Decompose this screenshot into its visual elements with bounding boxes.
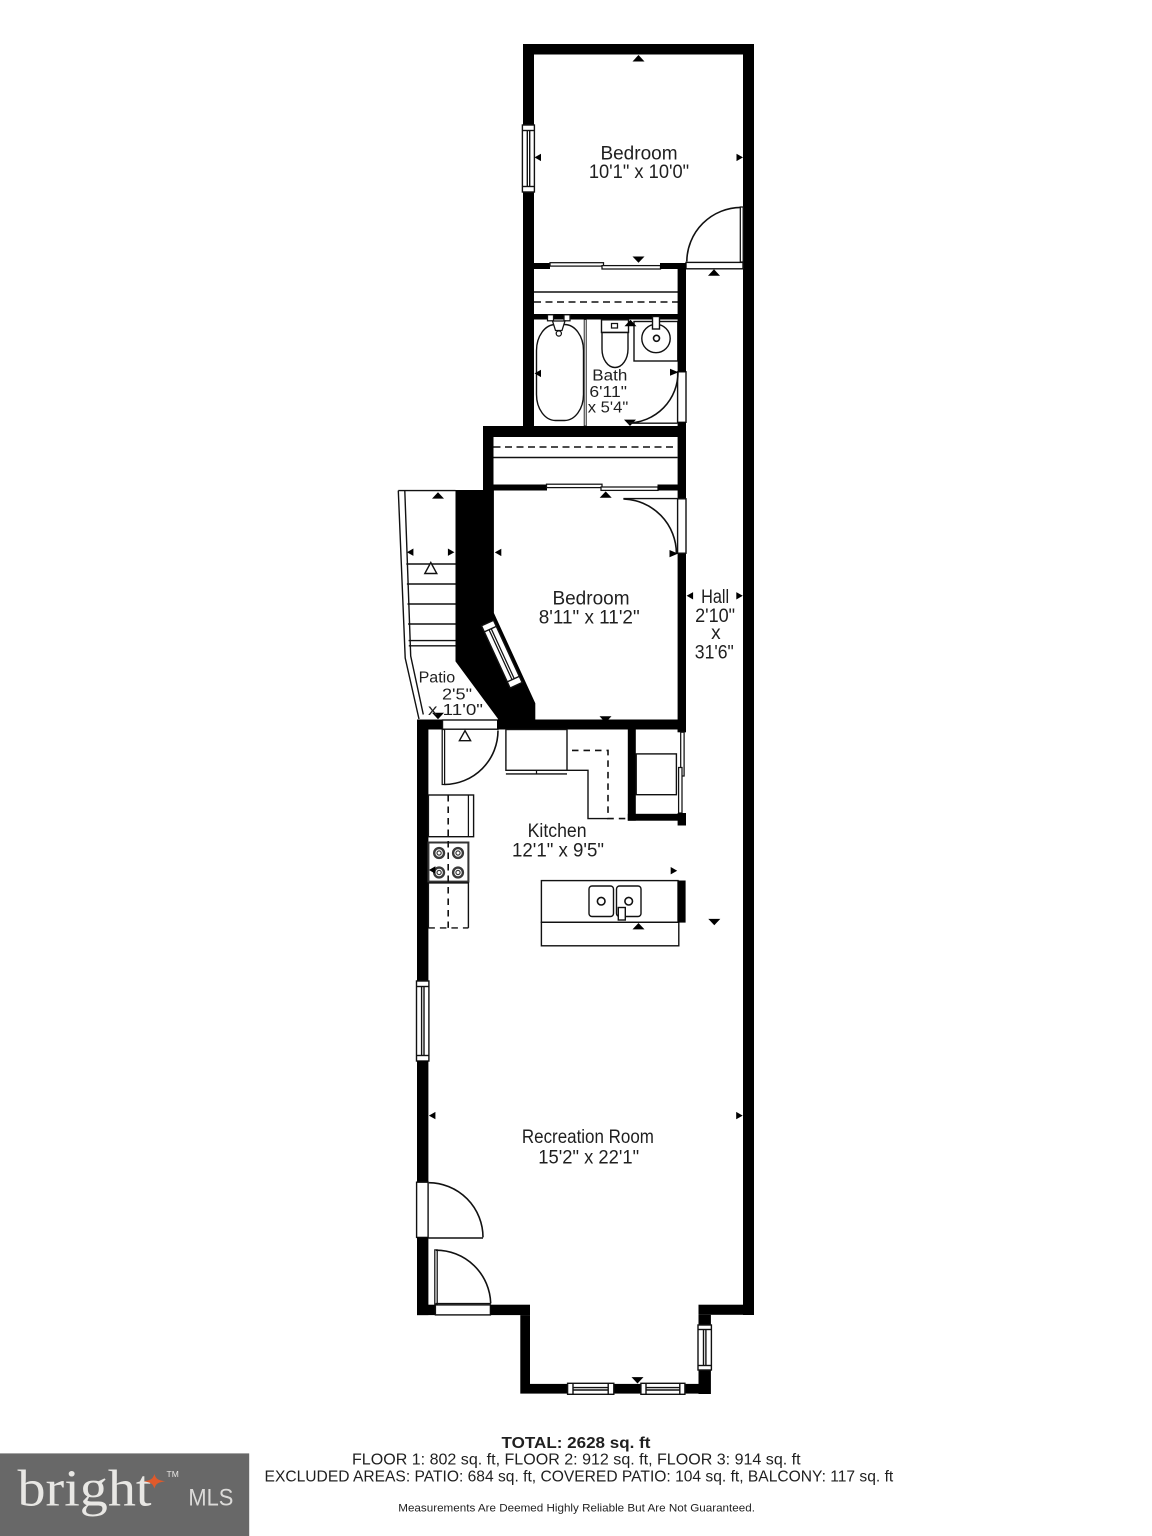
svg-text:Measurements Are Deemed Highly: Measurements Are Deemed Highly Reliable … [398, 1502, 755, 1514]
svg-text:Bath: Bath [592, 367, 627, 384]
svg-text:15'2" x 22'1": 15'2" x 22'1" [538, 1147, 639, 1168]
svg-text:Patio: Patio [419, 670, 456, 687]
svg-text:x 11'0": x 11'0" [428, 702, 483, 719]
svg-text:TM: TM [167, 1469, 179, 1479]
svg-text:8'11" x 11'2": 8'11" x 11'2" [539, 608, 640, 629]
svg-text:x: x [711, 623, 721, 644]
svg-text:12'1" x 9'5": 12'1" x 9'5" [512, 840, 604, 861]
svg-text:Recreation Room: Recreation Room [522, 1127, 654, 1148]
svg-text:FLOOR 1: 802 sq. ft, FLOOR 2:: FLOOR 1: 802 sq. ft, FLOOR 2: 912 sq. ft… [352, 1452, 801, 1469]
svg-text:EXCLUDED AREAS: PATIO: 684 sq.: EXCLUDED AREAS: PATIO: 684 sq. ft, COVER… [265, 1468, 894, 1485]
svg-text:Hall: Hall [701, 587, 729, 608]
svg-text:Bedroom: Bedroom [552, 589, 629, 610]
svg-text:MLS: MLS [188, 1485, 233, 1512]
svg-text:x 5'4": x 5'4" [588, 399, 629, 416]
svg-text:Kitchen: Kitchen [528, 821, 587, 842]
svg-text:31'6": 31'6" [695, 642, 734, 663]
svg-text:TOTAL: 2628 sq. ft: TOTAL: 2628 sq. ft [502, 1435, 651, 1452]
svg-text:bright: bright [18, 1461, 153, 1518]
svg-text:6'11": 6'11" [589, 384, 627, 401]
svg-text:10'1" x 10'0": 10'1" x 10'0" [589, 162, 689, 183]
